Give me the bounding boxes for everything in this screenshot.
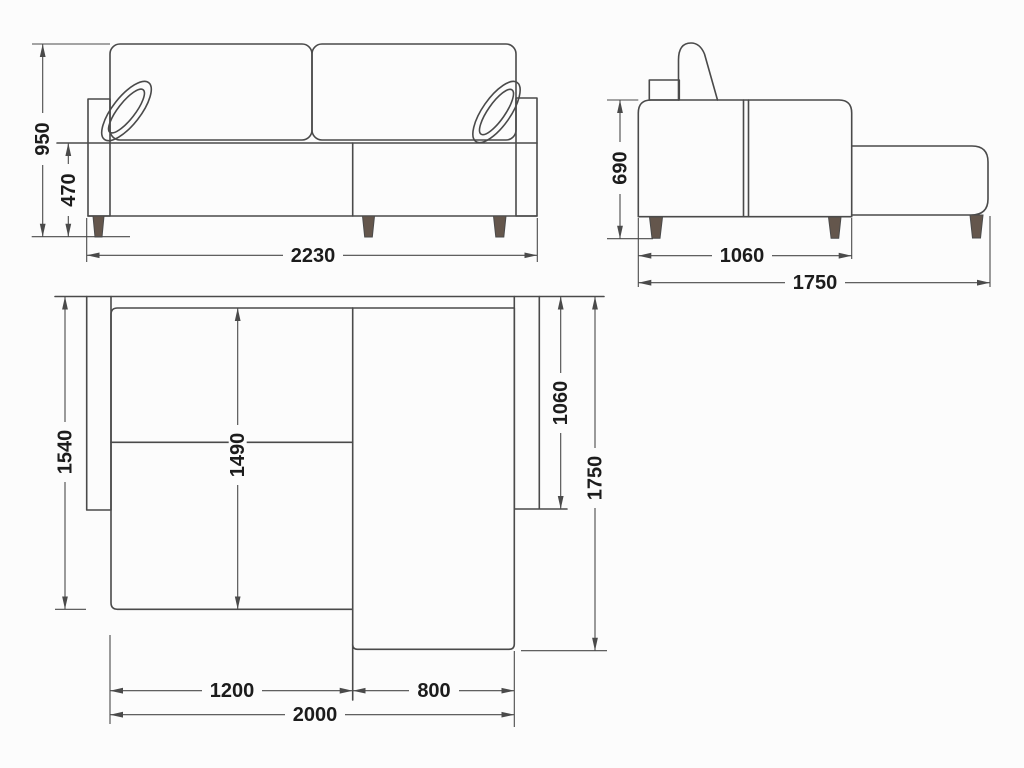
sofa-leg <box>93 216 104 237</box>
armrest-left-plan <box>87 297 111 511</box>
armrest-right <box>516 98 537 216</box>
svg-text:950: 950 <box>32 122 54 155</box>
pillow-left <box>93 74 159 148</box>
chaise-profile <box>852 146 988 215</box>
dimension-label-1490: 1490 <box>227 425 249 485</box>
dimension-drawing-page: 950 470 2230 690 <box>0 0 1024 768</box>
svg-text:2230: 2230 <box>291 245 336 267</box>
svg-text:1750: 1750 <box>793 272 838 294</box>
seam-lines <box>744 100 749 217</box>
headrest-profile <box>649 80 679 100</box>
pillow-right <box>464 74 528 149</box>
dimension-label-2000: 2000 <box>285 704 345 726</box>
dimension-label-800: 800 <box>409 680 459 702</box>
dimension-label-2230: 2230 <box>283 245 343 267</box>
front-view: 950 470 2230 <box>32 44 538 267</box>
sofa-body-profile <box>638 100 851 217</box>
dimension-label-1540: 1540 <box>55 422 77 482</box>
dimension-label-1200: 1200 <box>202 680 262 702</box>
dimension-label-1750: 1750 <box>785 272 845 294</box>
dimension-label-470: 470 <box>58 164 80 216</box>
backrest-cushion-right <box>312 44 516 140</box>
back-cushion-profile <box>679 43 718 100</box>
side-view: 690 1060 1750 <box>607 43 990 294</box>
svg-text:2000: 2000 <box>293 704 338 726</box>
svg-text:800: 800 <box>417 680 450 702</box>
svg-text:1060: 1060 <box>720 245 765 267</box>
svg-text:1750: 1750 <box>585 456 607 501</box>
svg-text:1490: 1490 <box>227 433 249 478</box>
dimension-label-690: 690 <box>610 142 632 194</box>
svg-text:690: 690 <box>610 151 632 184</box>
sofa-leg <box>650 217 663 238</box>
sofa-leg <box>970 215 983 238</box>
sofa-leg <box>363 216 375 237</box>
sofa-leg <box>829 217 842 238</box>
dimension-label-1060-plan: 1060 <box>550 373 572 433</box>
svg-text:1540: 1540 <box>55 430 77 475</box>
sofa-dimension-drawing: 950 470 2230 690 <box>0 0 1024 768</box>
svg-text:1200: 1200 <box>210 680 255 702</box>
sofa-leg <box>494 216 507 237</box>
svg-text:470: 470 <box>58 173 80 206</box>
dimension-label-950: 950 <box>32 113 54 165</box>
dimension-label-1750-plan: 1750 <box>585 448 607 508</box>
dimension-label-1060: 1060 <box>712 245 772 267</box>
backrest-cushion-left <box>110 44 312 140</box>
svg-text:1060: 1060 <box>550 381 572 426</box>
top-view: 1540 1490 1060 1750 1200 800 2000 <box>55 297 608 728</box>
chaise-plan <box>353 308 515 649</box>
